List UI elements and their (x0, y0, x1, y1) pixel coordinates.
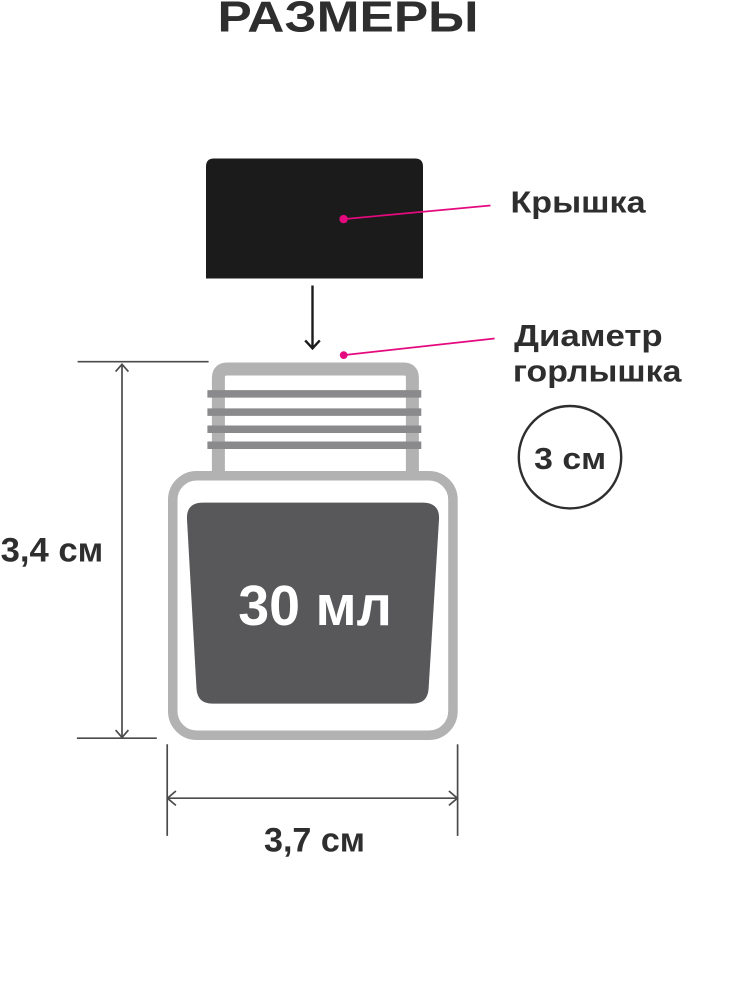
svg-text:Крышка: Крышка (511, 185, 647, 220)
svg-text:3,7 см: 3,7 см (264, 821, 365, 859)
svg-text:РАЗМЕРЫ: РАЗМЕРЫ (218, 0, 479, 42)
svg-text:3 см: 3 см (534, 441, 606, 476)
svg-text:Диаметр: Диаметр (514, 319, 663, 353)
svg-text:3,4 см: 3,4 см (1, 531, 104, 569)
svg-text:30 мл: 30 мл (238, 574, 392, 638)
svg-text:горлышка: горлышка (513, 355, 683, 389)
